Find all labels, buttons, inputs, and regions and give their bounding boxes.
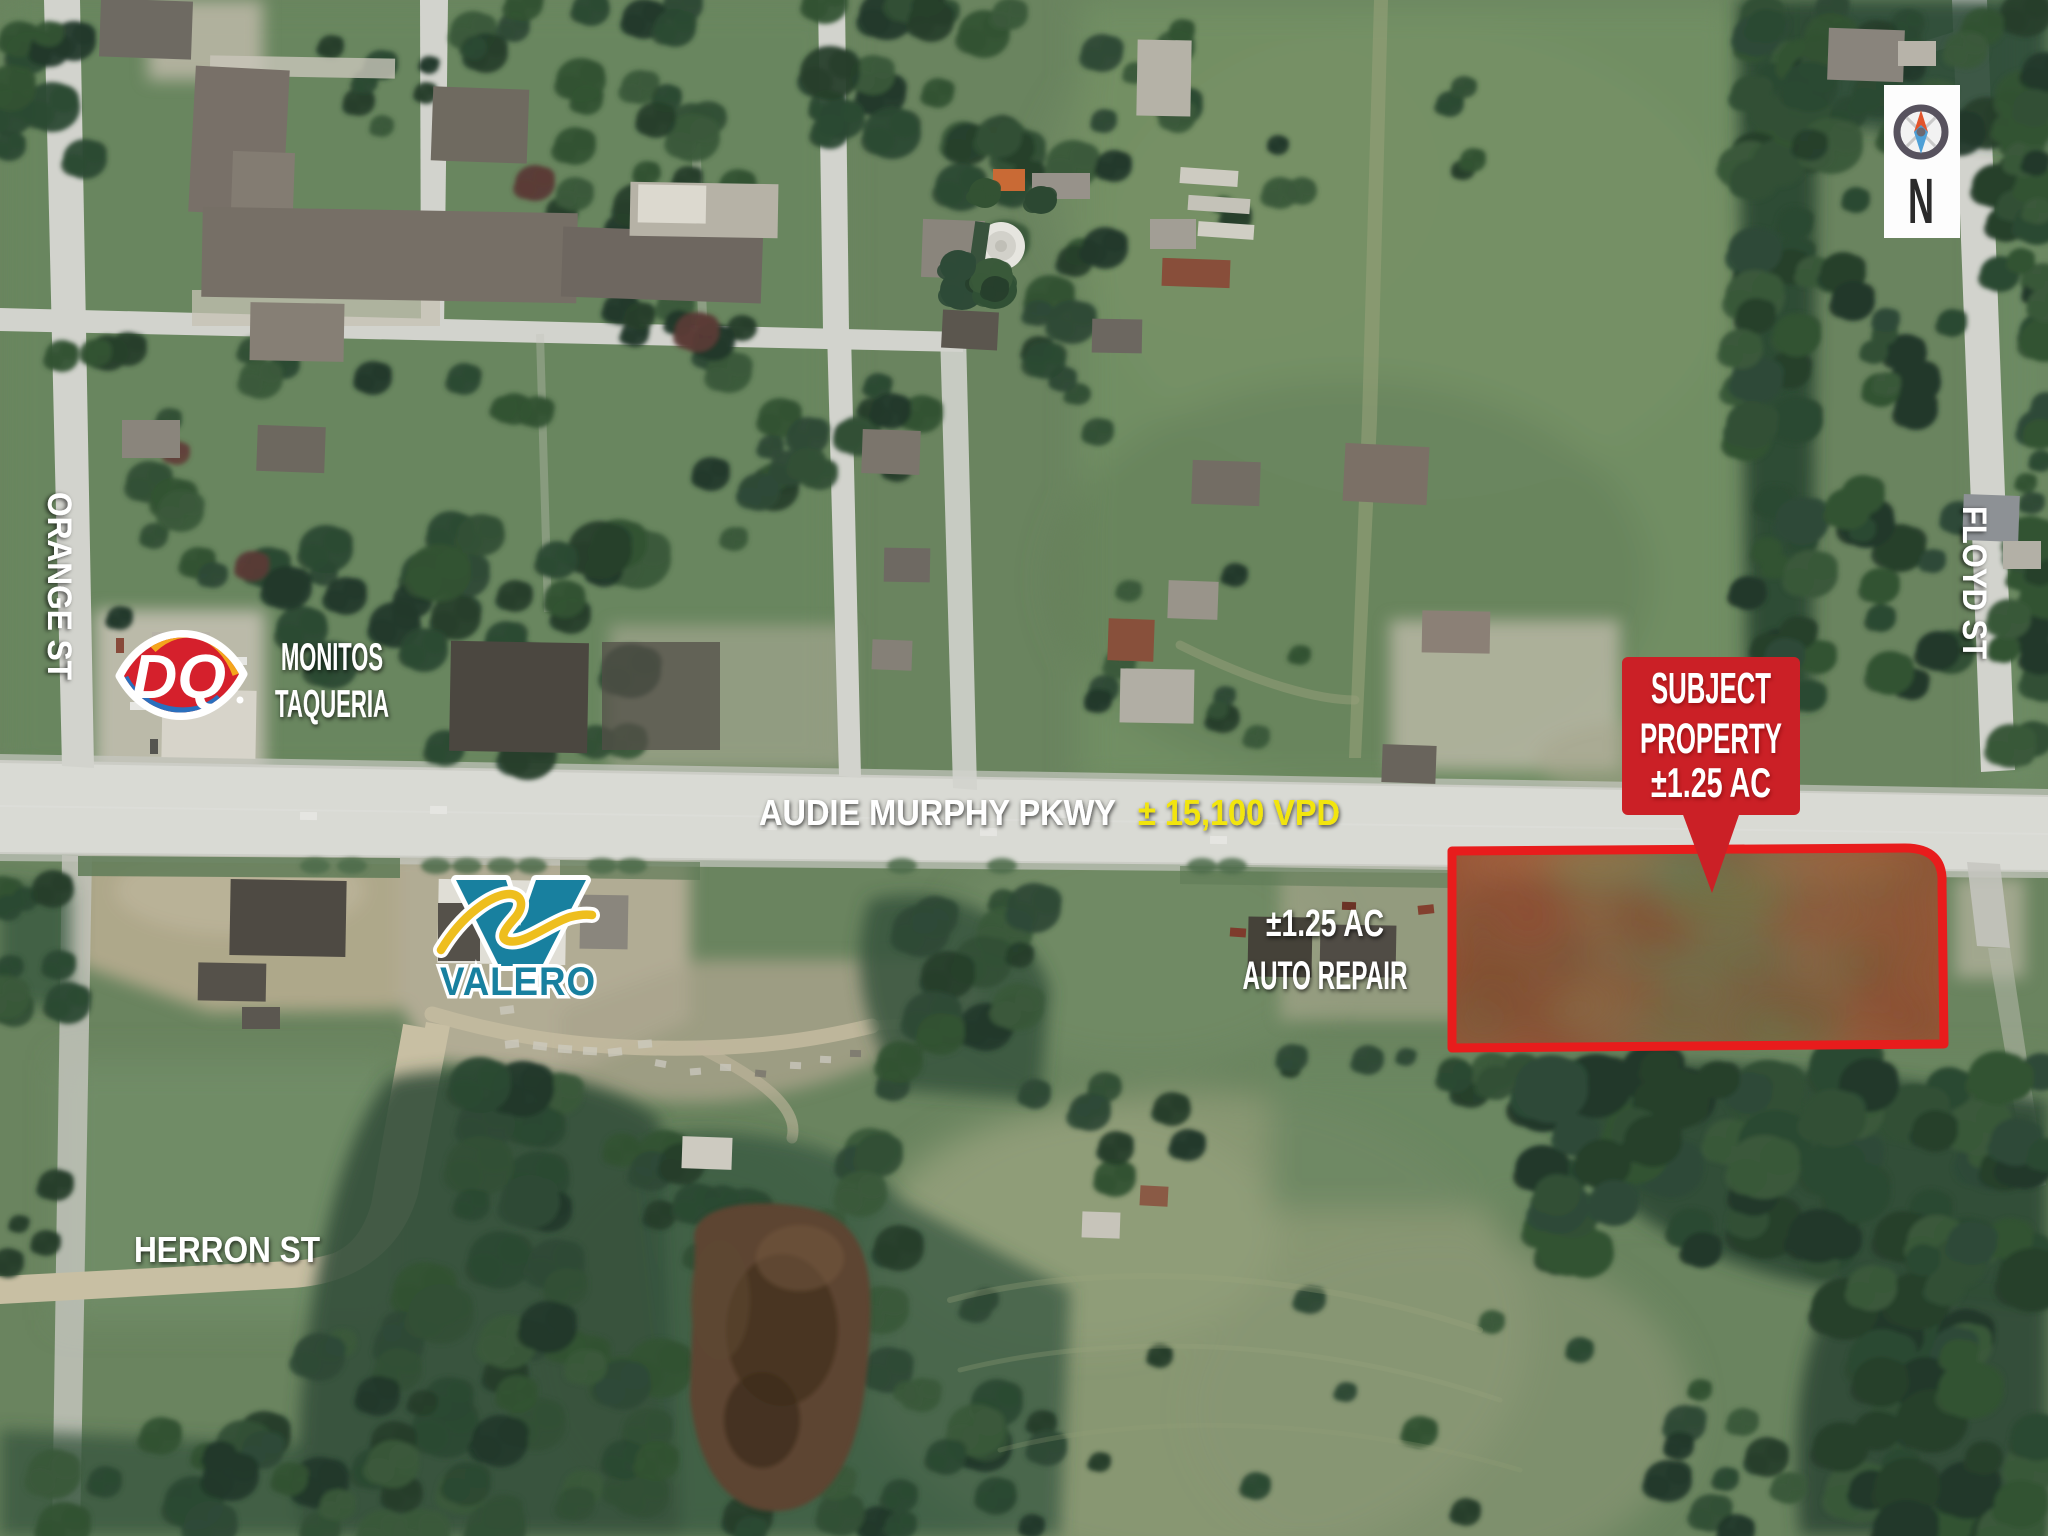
svg-text:SUBJECT: SUBJECT xyxy=(1651,664,1771,713)
svg-text:±1.25 AC: ±1.25 AC xyxy=(1651,759,1771,806)
svg-text:FLOYD ST: FLOYD ST xyxy=(1955,506,1993,659)
svg-text:MONITOS: MONITOS xyxy=(281,636,383,679)
svg-text:± 15,100 VPD: ± 15,100 VPD xyxy=(1138,792,1340,833)
svg-text:±1.25 AC: ±1.25 AC xyxy=(1266,903,1384,945)
svg-text:HERRON ST: HERRON ST xyxy=(134,1229,320,1270)
svg-text:ORANGE ST: ORANGE ST xyxy=(40,492,78,680)
svg-text:AUTO REPAIR: AUTO REPAIR xyxy=(1243,954,1408,998)
svg-text:PROPERTY: PROPERTY xyxy=(1640,715,1782,763)
svg-text:TAQUERIA: TAQUERIA xyxy=(275,683,389,726)
svg-text:N: N xyxy=(1908,165,1934,237)
svg-text:DQ: DQ xyxy=(132,643,226,712)
svg-text:AUDIE MURPHY PKWY: AUDIE MURPHY PKWY xyxy=(759,792,1116,833)
svg-text:VALERO: VALERO xyxy=(440,960,596,1004)
